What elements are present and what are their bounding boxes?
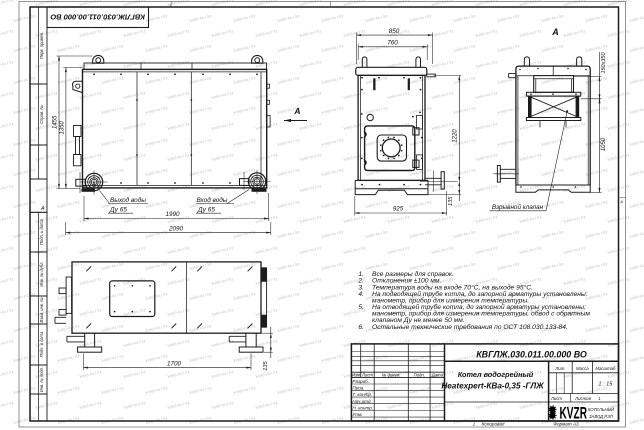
svg-text:Нач.отд.: Нач.отд. xyxy=(352,399,371,404)
svg-text:4.: 4. xyxy=(358,291,364,298)
svg-text:Heatexpert-КВа-0,35 -ГЛЖ: Heatexpert-КВа-0,35 -ГЛЖ xyxy=(441,382,544,391)
svg-text:Инв. № дубл.: Инв. № дубл. xyxy=(39,261,44,286)
svg-text:Ду 65: Ду 65 xyxy=(197,207,215,214)
svg-text:Взам. инв. №: Взам. инв. № xyxy=(39,297,44,323)
svg-text:1 : 15: 1 : 15 xyxy=(598,381,613,387)
svg-text:925: 925 xyxy=(393,206,404,213)
svg-text:KVZR: KVZR xyxy=(560,404,588,422)
svg-text:Дата: Дата xyxy=(431,372,444,377)
svg-text:1455: 1455 xyxy=(52,115,58,129)
svg-text:КВГЛЖ.030.011.00.000 ВО: КВГЛЖ.030.011.00.000 ВО xyxy=(50,13,145,22)
svg-text:Подп. и дата: Подп. и дата xyxy=(39,219,44,245)
svg-text:135: 135 xyxy=(263,360,269,370)
svg-text:КОТЕЛЬНЫЙ: КОТЕЛЬНЫЙ xyxy=(588,407,614,412)
svg-text:Лит.: Лит. xyxy=(554,366,565,371)
svg-text:Пров.: Пров. xyxy=(352,386,364,391)
svg-text:Изм: Изм xyxy=(352,372,360,377)
svg-text:Подп.: Подп. xyxy=(413,372,424,377)
svg-text:Котел водогрейный: Котел водогрейный xyxy=(458,370,534,379)
svg-text:Масштаб: Масштаб xyxy=(595,366,616,371)
svg-text:5.: 5. xyxy=(358,304,364,311)
svg-text:Копировал: Копировал xyxy=(482,422,505,427)
svg-text:Лист: Лист xyxy=(361,372,373,377)
svg-text:1700: 1700 xyxy=(167,360,182,367)
svg-text:Лист: Лист xyxy=(550,396,562,401)
svg-text:Остальные технические требован: Остальные технические требования по ОСТ … xyxy=(372,323,568,331)
svg-text:ЗАВОД РЭП: ЗАВОД РЭП xyxy=(589,414,614,419)
svg-text:Перв. примен.: Перв. примен. xyxy=(39,32,44,59)
svg-text:Т. контр.: Т. контр. xyxy=(352,392,372,397)
svg-text:2: 2 xyxy=(169,2,173,7)
svg-text:№ докум.: № докум. xyxy=(382,372,401,377)
svg-text:Н. контр.: Н. контр. xyxy=(352,405,373,410)
svg-text:A: A xyxy=(551,27,559,37)
svg-text:150х350: 150х350 xyxy=(601,52,607,74)
svg-text:6.: 6. xyxy=(358,324,364,331)
svg-text:1050: 1050 xyxy=(601,137,607,151)
svg-text:A: A xyxy=(40,206,45,212)
svg-text:Выход воды: Выход воды xyxy=(110,196,146,204)
svg-text:Подп. и дата: Подп. и дата xyxy=(39,331,44,357)
svg-text:Инв. № подл.: Инв. № подл. xyxy=(39,367,44,392)
svg-text:A: A xyxy=(619,199,623,204)
svg-text:Взрывной клапан: Взрывной клапан xyxy=(492,203,544,211)
svg-text:760: 760 xyxy=(387,40,398,47)
svg-text:КВГЛЖ.030.011.00.000 ВО: КВГЛЖ.030.011.00.000 ВО xyxy=(476,349,587,359)
svg-text:Утв.: Утв. xyxy=(352,412,362,417)
svg-text:135: 135 xyxy=(448,196,454,206)
svg-text:A: A xyxy=(293,106,300,116)
svg-text:Справ. №: Справ. № xyxy=(39,105,44,124)
svg-text:Вход воды: Вход воды xyxy=(196,196,227,204)
svg-text:850: 850 xyxy=(389,28,400,35)
svg-text:1220: 1220 xyxy=(452,129,458,143)
svg-text:1350: 1350 xyxy=(60,120,66,134)
svg-text:1990: 1990 xyxy=(165,211,180,218)
svg-text:Ду 65: Ду 65 xyxy=(109,207,127,214)
svg-text:Формат А3: Формат А3 xyxy=(553,422,579,427)
svg-text:Температура воды на входе 70°С: Температура воды на входе 70°С, на выход… xyxy=(372,283,533,291)
svg-text:2090: 2090 xyxy=(168,225,184,232)
svg-text:Листов: Листов xyxy=(574,396,591,401)
svg-text:Разраб.: Разраб. xyxy=(352,379,369,384)
svg-text:Масса: Масса xyxy=(576,366,589,371)
